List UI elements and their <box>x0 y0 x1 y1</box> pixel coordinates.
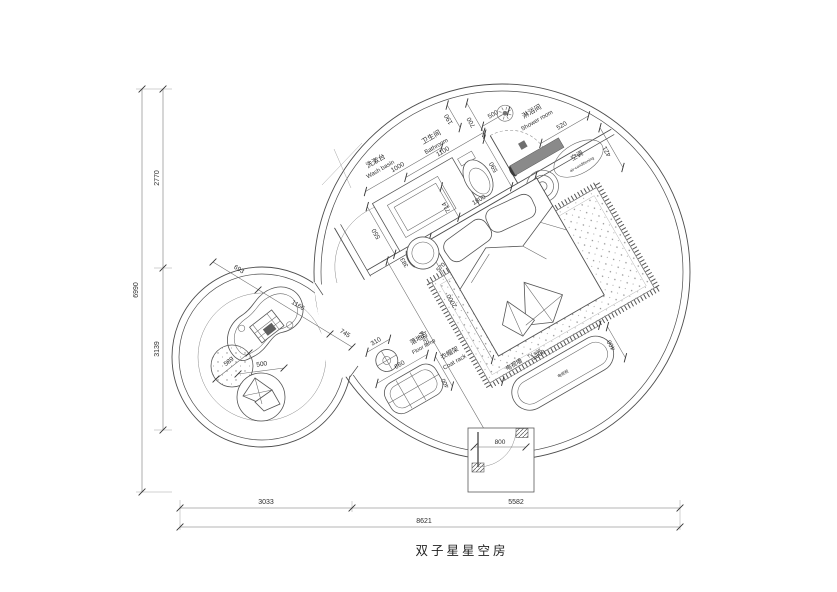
dim-bathroom-190: 190 <box>438 100 465 135</box>
dim-3033-text: 3033 <box>258 499 274 506</box>
dim-chair-500-text: 500 <box>256 360 268 368</box>
dim-bathroom-700: 700 <box>457 98 489 141</box>
dim-310-text: 310 <box>370 336 383 348</box>
dim-500-text: 500 <box>487 109 500 121</box>
dim-6990-text: 6990 <box>133 282 140 298</box>
shower-partition <box>490 136 518 184</box>
dim-3139: 3139 <box>154 268 166 433</box>
dim-693-text: 693 <box>232 264 245 276</box>
floor-plan-page: 洗漱台 Wash basin 1000 550 714 590 卫生间 Bath… <box>0 0 837 592</box>
dim-700-text: 700 <box>466 115 478 128</box>
dim-800-text: 800 <box>495 439 506 446</box>
dim-5582-text: 5582 <box>508 499 524 506</box>
dim-520-text: 520 <box>556 120 569 132</box>
bath-side-wall-a <box>334 228 364 280</box>
interior-rotated: 洗漱台 Wash basin 1000 550 714 590 卫生间 Bath… <box>269 37 720 485</box>
shower-bench <box>510 138 564 176</box>
blanket-chair <box>237 373 285 421</box>
entry-vestibule: 800 <box>468 428 534 492</box>
floor-lamp <box>372 345 402 375</box>
dim-8621-text: 8621 <box>416 518 432 525</box>
door-jamb-block-top <box>516 429 528 438</box>
dim-590-text: 590 <box>488 160 500 173</box>
dim-row-total: 8621 <box>177 518 684 530</box>
dim-3139-text: 3139 <box>154 341 161 357</box>
dim-550-text: 550 <box>371 227 383 240</box>
dim-2770-text: 2770 <box>154 170 161 186</box>
dim-shower-500: 500 <box>476 103 514 131</box>
lounge-interior: 589 500 693 1166 745 <box>210 143 362 421</box>
dim-6990: 6990 <box>133 86 145 496</box>
dim-bench-520: 520 <box>534 107 593 148</box>
floor-plan-drawing: 洗漱台 Wash basin 1000 550 714 590 卫生间 Bath… <box>0 0 837 592</box>
shower-drain <box>518 140 528 150</box>
dim-2770: 2770 <box>154 86 166 272</box>
drawing-title: 双子星星空房 <box>415 543 508 558</box>
left-dimensions: 6990 2770 3139 <box>133 86 172 496</box>
dim-row-segments: 3033 5582 <box>177 499 684 511</box>
dim-190-text: 190 <box>443 112 455 125</box>
passage-opening <box>313 282 361 381</box>
bottom-dimensions: 3033 5582 8621 <box>177 499 684 530</box>
bath-side-wall-b <box>341 224 371 276</box>
